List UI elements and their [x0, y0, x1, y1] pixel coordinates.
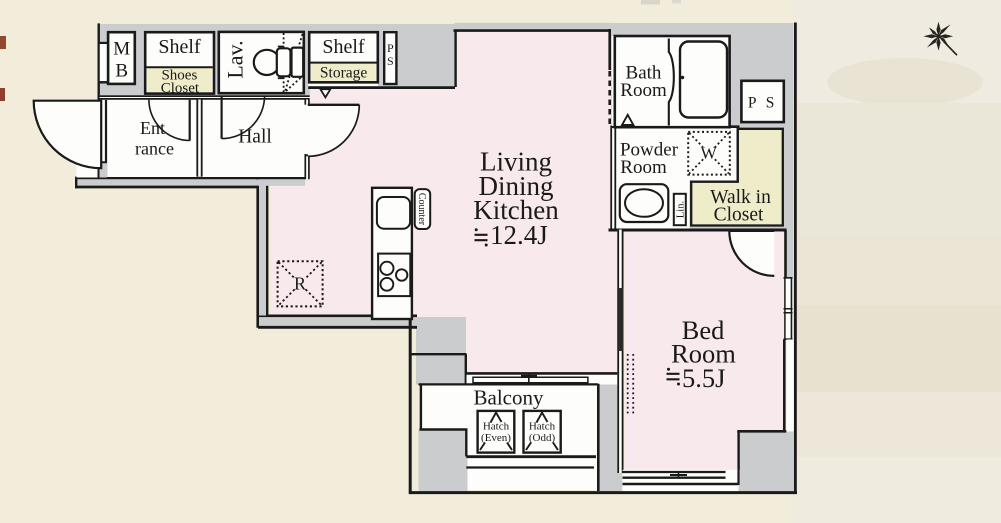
- svg-text:P S: P S: [748, 95, 778, 112]
- svg-text:Room: Room: [620, 157, 667, 178]
- svg-text:Balcony: Balcony: [474, 386, 544, 410]
- svg-text:Shelf: Shelf: [322, 36, 365, 58]
- svg-text:M: M: [113, 39, 130, 60]
- svg-text:W: W: [701, 144, 718, 163]
- svg-text:Counter: Counter: [416, 193, 427, 226]
- svg-text:Lav.: Lav.: [223, 40, 248, 78]
- svg-text:Room: Room: [620, 80, 667, 101]
- svg-text:B: B: [115, 61, 128, 82]
- svg-text:12.4J: 12.4J: [490, 220, 548, 250]
- svg-text:S: S: [387, 54, 394, 68]
- svg-text:Lin.: Lin.: [676, 201, 687, 218]
- svg-text:P: P: [387, 41, 394, 55]
- svg-text:Storage: Storage: [320, 65, 367, 82]
- svg-text:Ent: Ent: [140, 118, 165, 138]
- svg-text:Closet: Closet: [161, 81, 200, 97]
- svg-text:Closet: Closet: [714, 205, 764, 226]
- svg-text:Hall: Hall: [238, 127, 272, 148]
- svg-text:5.5J: 5.5J: [682, 363, 725, 393]
- svg-text:rance: rance: [135, 139, 174, 159]
- svg-text:(Odd): (Odd): [529, 432, 556, 444]
- svg-text:(Even): (Even): [481, 432, 511, 444]
- svg-text:R: R: [294, 274, 306, 294]
- svg-text:Shelf: Shelf: [158, 36, 201, 58]
- svg-text:Hatch: Hatch: [529, 421, 556, 433]
- svg-text:Hatch: Hatch: [483, 421, 510, 433]
